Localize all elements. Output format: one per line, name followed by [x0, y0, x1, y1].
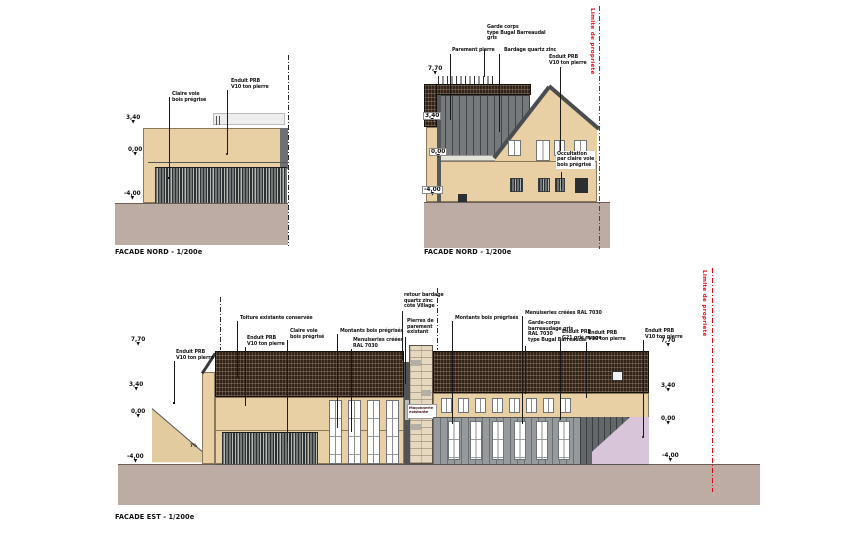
triangle-down-icon: ▼ — [126, 121, 140, 125]
leader-line — [586, 342, 587, 398]
leader-end — [173, 402, 175, 404]
louvered-opening — [555, 178, 565, 192]
est-ramp-slope: 7% — [190, 444, 197, 449]
label-garde-corps: Garde corps type Bugal Barreaudal gris — [487, 25, 546, 42]
level-marker: 0,00▼ — [131, 409, 145, 419]
triangle-down-icon: ▼ — [428, 72, 442, 76]
est-left-annex — [202, 372, 215, 464]
est-axis-left — [220, 297, 221, 350]
window — [458, 398, 469, 413]
leader-line — [561, 172, 562, 188]
dark-opening — [575, 178, 588, 193]
base-notch — [458, 194, 467, 202]
leader-line — [560, 341, 561, 420]
window — [475, 398, 486, 413]
lower-window — [470, 421, 482, 460]
level-marker: 3,40▼ — [424, 113, 440, 123]
caption-facade-nord-house: FACADE NORD - 1/200e — [424, 248, 511, 256]
leader-line — [245, 347, 246, 406]
triangle-down-icon: ▼ — [127, 460, 144, 464]
leader-line — [643, 340, 644, 437]
leader-line — [452, 321, 453, 424]
window — [543, 398, 554, 413]
property-line-label: Limite de propriété — [589, 8, 595, 75]
est-ground — [118, 464, 760, 505]
level-marker: 3,40▼ — [129, 382, 143, 392]
stone-block-gray — [411, 360, 421, 366]
triangle-down-icon: ▼ — [661, 422, 675, 426]
nord-house-roofband — [424, 84, 531, 95]
leader-end — [168, 177, 170, 179]
leader-line — [227, 90, 228, 154]
property-line — [599, 6, 600, 249]
level-marker: 3,40▼ — [661, 383, 675, 393]
triangle-down-icon: ▼ — [662, 459, 679, 463]
stone-block-gray — [421, 390, 431, 396]
level-marker: -4,00▼ — [127, 454, 144, 464]
roof-railing — [438, 76, 496, 84]
level-marker: -4,00▼ — [124, 191, 141, 201]
est-claire-voie-panel — [222, 432, 318, 464]
est-base-line — [215, 464, 649, 465]
tall-window — [367, 400, 380, 464]
triangle-down-icon: ▼ — [131, 343, 145, 347]
window — [492, 398, 503, 413]
lower-window — [492, 421, 504, 460]
label-menuiseries-left: Menuiseries créées RAL 7030 — [353, 338, 403, 349]
label-retour-bardage: retour bardage quartz zinc côté Village — [404, 293, 444, 310]
label-enduit3: Enduit PRB V10 ton pierre — [588, 331, 626, 342]
label-toiture: Toiture existante conservée — [240, 316, 313, 322]
label-pierres-parement: Pierres de parement existant — [407, 319, 434, 336]
tower-note: Maçonnerie existante — [408, 405, 436, 418]
french-door — [536, 140, 550, 161]
triangle-down-icon: ▼ — [424, 119, 440, 123]
level-marker: -4,00▼ — [423, 187, 442, 197]
triangle-down-icon: ▼ — [128, 153, 142, 157]
lower-window — [514, 421, 526, 460]
label-montants-left: Montants bois prégrisés — [340, 329, 403, 335]
window — [441, 398, 452, 413]
est-roof-left — [215, 351, 404, 397]
triangle-down-icon: ▼ — [129, 388, 143, 392]
label-enduit: Enduit PRB V10 ton pierre — [231, 79, 269, 90]
label-enduit2: Enduit PRB V10 ton pierre — [247, 336, 285, 347]
lower-window — [448, 421, 460, 460]
label-enduit4: Enduit PRB V10 ton pierre — [645, 329, 683, 340]
leader-line — [450, 54, 451, 120]
triangle-down-icon: ▼ — [661, 344, 675, 348]
leader-line — [287, 340, 288, 442]
label-bardage: Bardage quartz zinc — [504, 48, 556, 54]
louvered-opening — [538, 178, 550, 192]
triangle-down-icon: ▼ — [124, 197, 141, 201]
lower-window — [536, 421, 548, 460]
level-marker: 7,70▼ — [131, 337, 145, 347]
nord-small-ground — [115, 203, 288, 245]
leader-line — [499, 54, 500, 132]
leader-line — [405, 337, 406, 384]
caption-facade-est: FACADE EST - 1/200e — [115, 513, 194, 521]
label-parement: Parement pierre — [452, 48, 495, 54]
nord-small-lightband — [213, 113, 285, 125]
leader-line — [237, 321, 238, 378]
triangle-down-icon: ▼ — [423, 193, 442, 197]
level-marker: -4,00▼ — [662, 453, 679, 463]
label-enduit-left: Enduit PRB V10 ton pierre — [176, 350, 214, 361]
label-menuiseries-right: Menuiseries créées RAL 7030 — [525, 311, 602, 317]
label-claire-voie-est: Claire voie bois prégrisé — [290, 329, 324, 340]
label-claire-voie: Claire voie bois prégrisé — [172, 92, 206, 103]
tall-window — [386, 400, 399, 464]
property-line — [712, 268, 713, 492]
caption-facade-nord-small: FACADE NORD - 1/200e — [115, 248, 202, 256]
leader-line — [402, 311, 403, 360]
label-montants-right: Montants bois prégrisés — [455, 316, 518, 322]
leader-line — [174, 361, 175, 403]
leader-line — [351, 349, 352, 432]
leader-line — [522, 316, 523, 424]
window — [526, 398, 537, 413]
nord-small-claire-voie — [155, 167, 287, 203]
window — [508, 140, 521, 156]
window — [509, 398, 520, 413]
leader-end — [226, 153, 228, 155]
level-marker: 3,40▼ — [126, 115, 140, 125]
label-enduit: Enduit PRB V10 ton pierre — [549, 55, 587, 66]
property-line-label: Limite de propriété — [701, 270, 707, 337]
nord-house-ground — [424, 202, 610, 248]
triangle-down-icon: ▼ — [430, 155, 446, 159]
window — [560, 398, 571, 413]
nord-small-axis-line — [288, 55, 289, 246]
level-marker: 0,00▼ — [661, 416, 675, 426]
label-occultation: Occultation par claire voie bois prégris… — [556, 151, 595, 169]
skylight — [612, 371, 623, 381]
level-marker: 0,00▼ — [128, 147, 142, 157]
triangle-down-icon: ▼ — [131, 415, 145, 419]
leader-line — [337, 334, 338, 428]
leader-line — [169, 97, 170, 178]
leader-end — [642, 436, 644, 438]
level-marker: 0,00▼ — [430, 149, 446, 159]
louvered-opening — [510, 178, 523, 192]
stone-block-gray — [411, 424, 421, 430]
triangle-down-icon: ▼ — [661, 389, 675, 393]
drawing-sheet: 3,40▼ 0,00▼ -4,00▼ Claire voie bois prég… — [0, 0, 843, 541]
leader-line — [525, 346, 526, 394]
nord-small-chimney-marks — [216, 116, 220, 125]
lower-window — [558, 421, 570, 460]
tall-window — [329, 400, 342, 464]
nord-small-corner-strip — [280, 128, 288, 169]
level-marker: 7,70▼ — [428, 66, 442, 76]
